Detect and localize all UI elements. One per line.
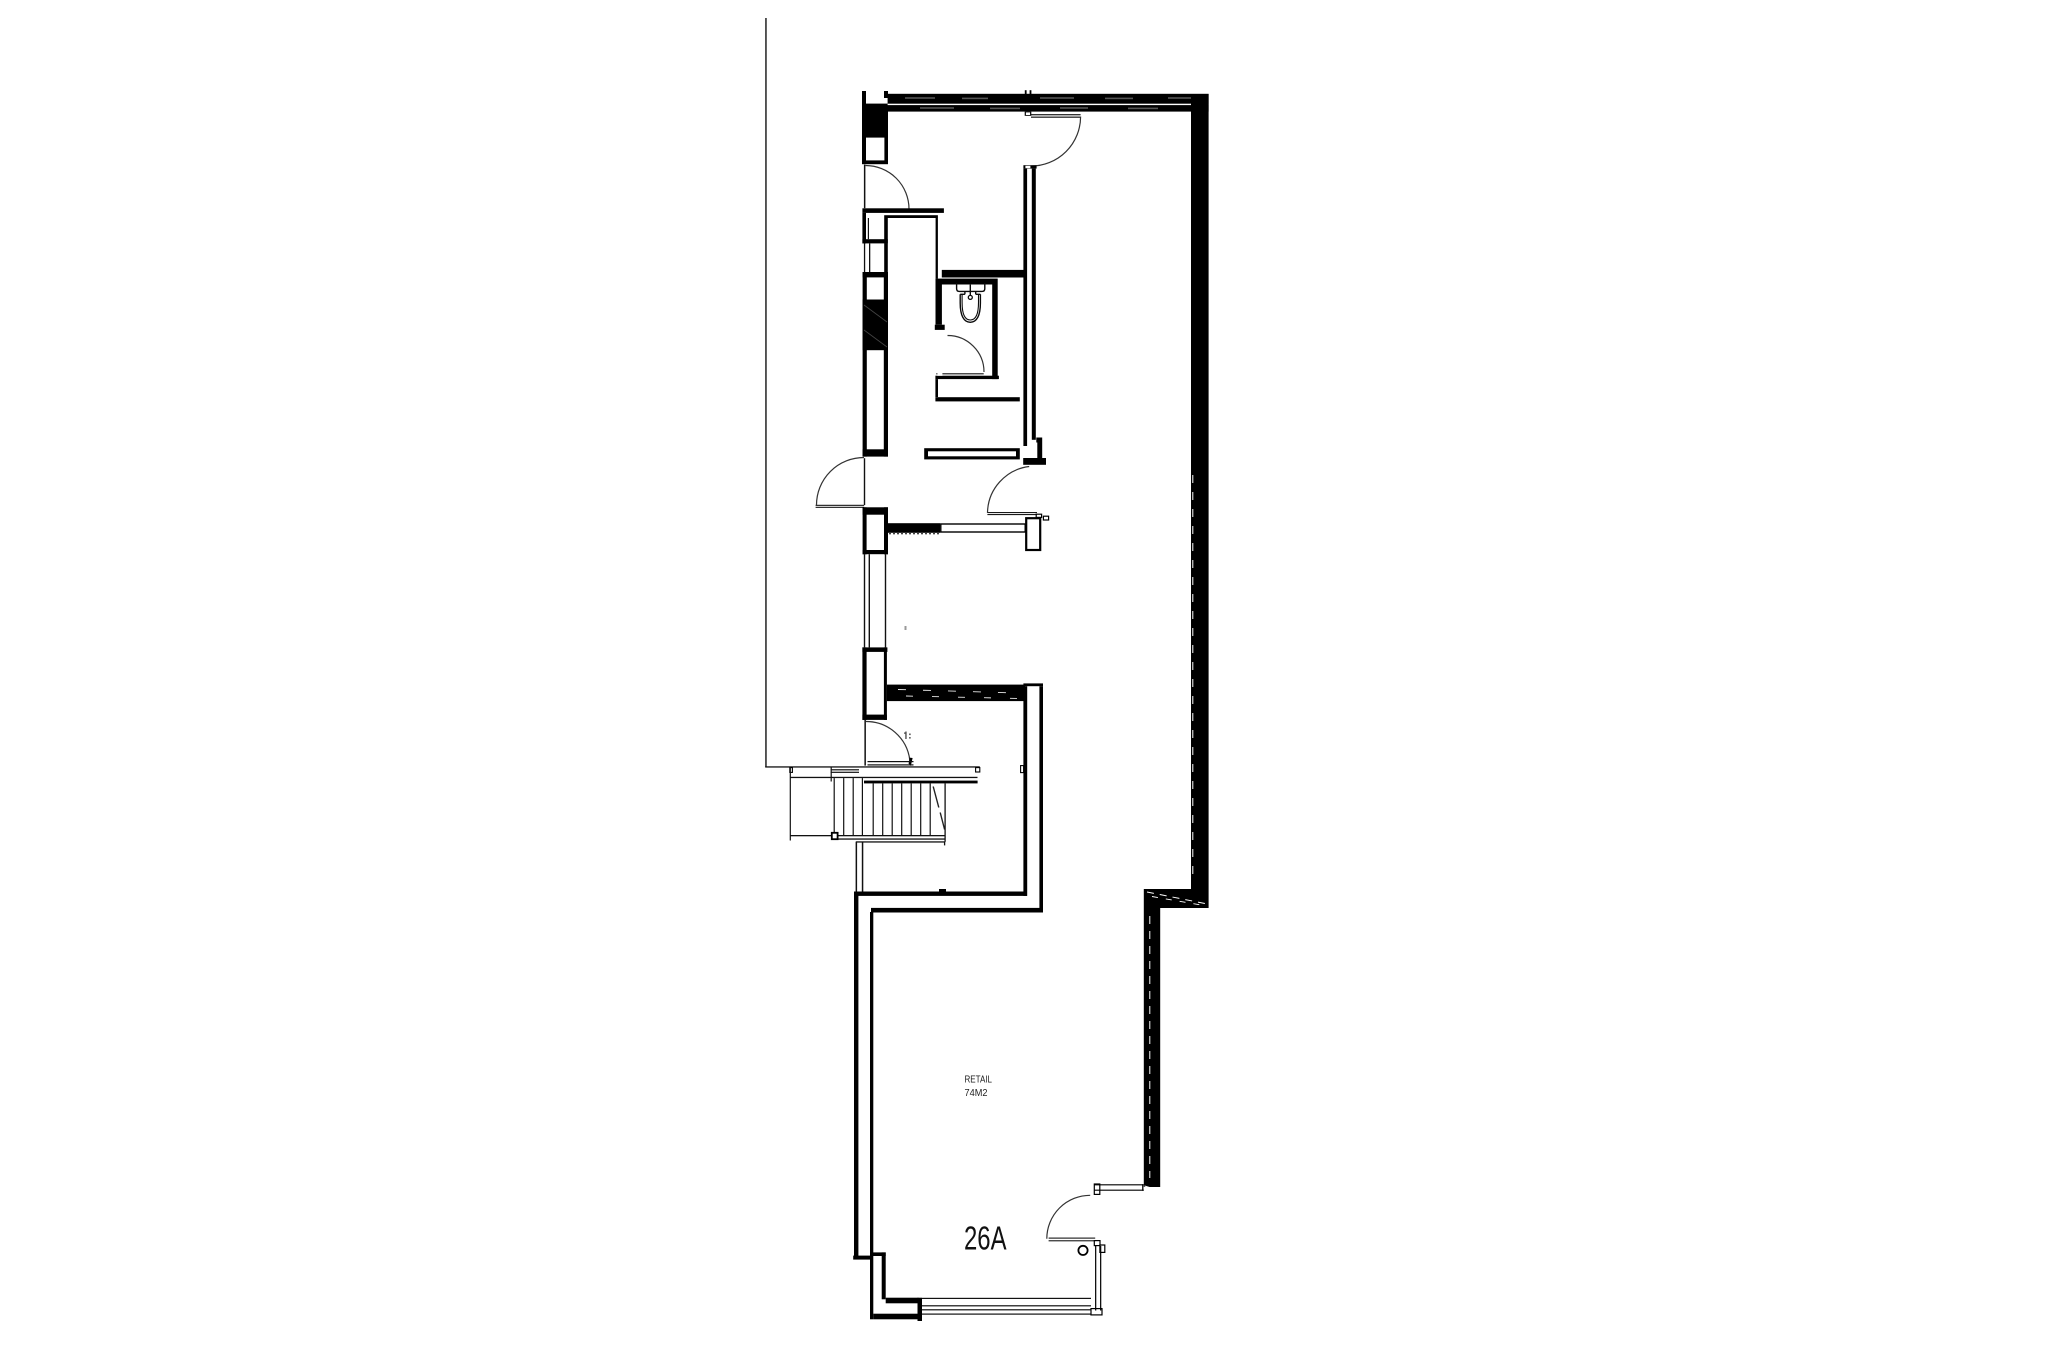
svg-text:74M2: 74M2 <box>965 1087 988 1099</box>
svg-text:RETAIL: RETAIL <box>965 1074 993 1086</box>
svg-text:26A: 26A <box>964 1220 1007 1257</box>
